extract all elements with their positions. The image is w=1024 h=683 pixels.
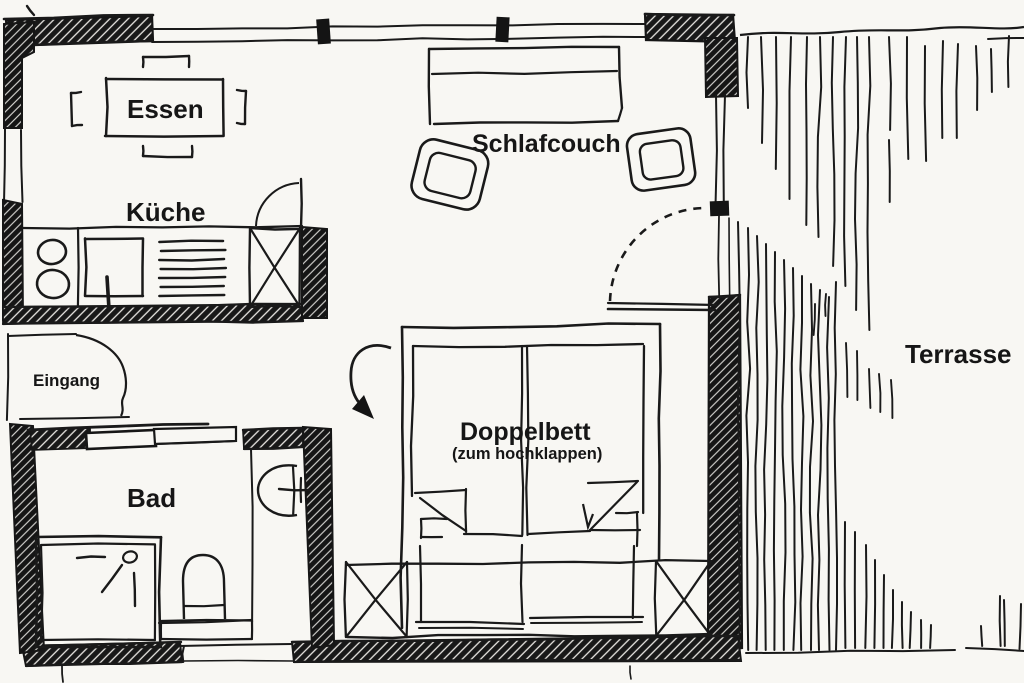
svg-text:Schlafcouch: Schlafcouch [472,130,621,158]
svg-text:Terrasse: Terrasse [905,339,1012,369]
svg-text:Bad: Bad [127,483,176,513]
svg-text:Eingang: Eingang [33,371,100,390]
svg-text:Essen: Essen [127,94,204,124]
svg-text:Doppelbett: Doppelbett [460,418,591,446]
svg-text:Küche: Küche [126,197,205,227]
svg-text:(zum hochklappen): (zum hochklappen) [452,445,602,463]
